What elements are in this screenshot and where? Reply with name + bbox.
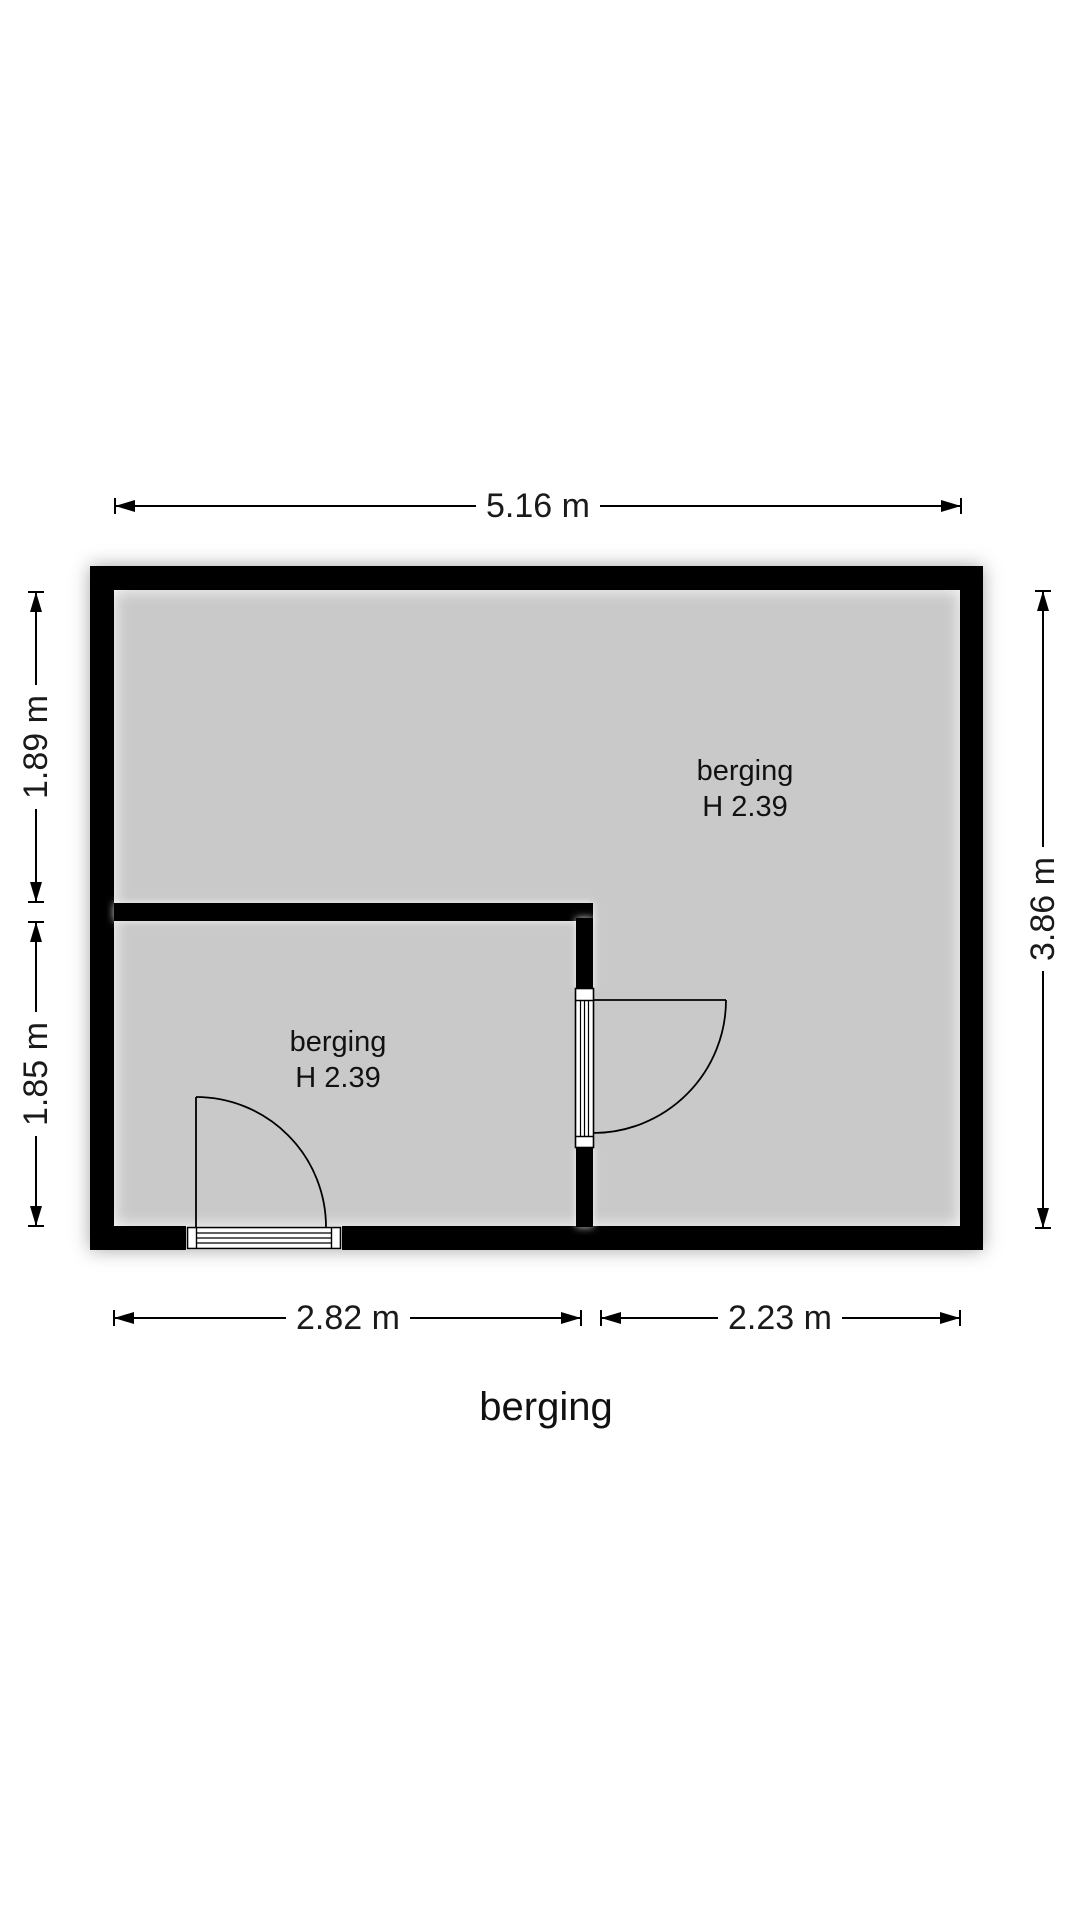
dimension-bottom-right-label: 2.23 m: [718, 1299, 842, 1337]
floorplan-canvas: 5.16 m 1.89 m 1.85 m 3.86 m 2.82 m 2.23 …: [0, 0, 1080, 1920]
room-label-lower: berging H 2.39: [290, 1024, 387, 1096]
interior-door-threshold: [576, 989, 594, 1148]
dimension-bottom-left-label: 2.82 m: [286, 1299, 410, 1337]
room-name-lower: berging: [290, 1024, 387, 1060]
dimension-top-label: 5.16 m: [476, 487, 600, 525]
room-height-upper: H 2.39: [697, 789, 794, 825]
dimension-left-upper-label: 1.89 m: [17, 685, 55, 809]
plan-title: berging: [479, 1385, 612, 1429]
dimension-right-label: 3.86 m: [1024, 847, 1062, 971]
room-name-upper: berging: [697, 753, 794, 789]
room-label-upper: berging H 2.39: [697, 753, 794, 825]
plan-linework: [0, 0, 1080, 1920]
entry-door-threshold: [188, 1228, 341, 1249]
room-height-lower: H 2.39: [290, 1060, 387, 1096]
entry-door-swing: [196, 1097, 326, 1227]
interior-door-swing: [593, 1000, 726, 1133]
dimension-left-lower-label: 1.85 m: [17, 1012, 55, 1136]
